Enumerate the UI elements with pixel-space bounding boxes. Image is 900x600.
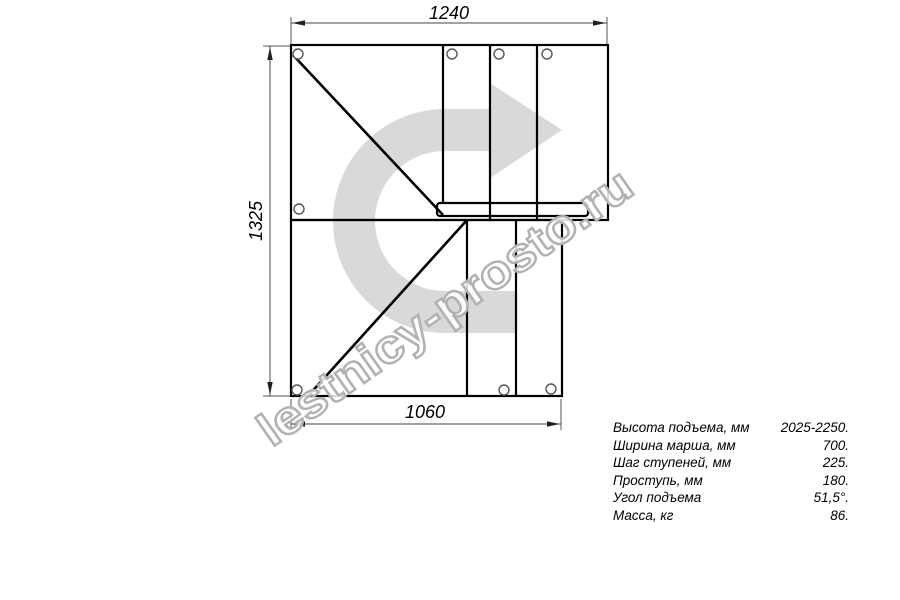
mounting-hole bbox=[494, 49, 504, 59]
staircase-drawing-page: 1240 1325 1060 lestnicy-prosto.ru Высота… bbox=[0, 0, 900, 600]
mounting-hole bbox=[542, 49, 552, 59]
spec-value: 180. bbox=[823, 472, 849, 490]
spec-value: 225. bbox=[823, 454, 849, 472]
spec-value: 86. bbox=[830, 507, 849, 525]
spec-row-mass: Масса, кг 86. bbox=[613, 507, 849, 525]
mounting-hole bbox=[294, 204, 304, 214]
mounting-hole bbox=[546, 384, 556, 394]
dimension-arrow bbox=[593, 20, 606, 25]
spec-value: 700. bbox=[823, 437, 849, 455]
spec-label: Угол подъема bbox=[613, 489, 701, 507]
specs-table: Высота подъема, мм 2025-2250. Ширина мар… bbox=[613, 419, 849, 525]
dimension-left: 1325 bbox=[246, 46, 290, 396]
spec-label: Ширина марша, мм bbox=[613, 437, 736, 455]
dimension-top: 1240 bbox=[291, 3, 607, 44]
spec-label: Высота подъема, мм bbox=[613, 419, 749, 437]
spec-row-climb-angle: Угол подъема 51,5°. bbox=[613, 489, 849, 507]
mounting-hole bbox=[447, 49, 457, 59]
dimension-arrow bbox=[292, 20, 305, 25]
direction-arrow-head bbox=[490, 83, 562, 178]
dimension-label-bottom: 1060 bbox=[405, 402, 445, 422]
dimension-arrow bbox=[267, 382, 272, 395]
dimension-label-top: 1240 bbox=[429, 3, 469, 23]
spec-label: Шаг ступеней, мм bbox=[613, 454, 731, 472]
spec-row-step-pitch: Шаг ступеней, мм 225. bbox=[613, 454, 849, 472]
dimension-arrow bbox=[267, 47, 272, 60]
spec-label: Масса, кг bbox=[613, 507, 673, 525]
mounting-hole bbox=[293, 49, 303, 59]
spec-label: Проступь, мм bbox=[613, 472, 703, 490]
dimension-arrow bbox=[547, 421, 560, 426]
dimension-label-left: 1325 bbox=[246, 200, 266, 241]
mounting-hole bbox=[499, 385, 509, 395]
spec-row-tread-depth: Проступь, мм 180. bbox=[613, 472, 849, 490]
spec-row-flight-width: Ширина марша, мм 700. bbox=[613, 437, 849, 455]
spec-row-height: Высота подъема, мм 2025-2250. bbox=[613, 419, 849, 437]
spec-value: 2025-2250. bbox=[781, 419, 849, 437]
spec-value: 51,5°. bbox=[814, 489, 849, 507]
